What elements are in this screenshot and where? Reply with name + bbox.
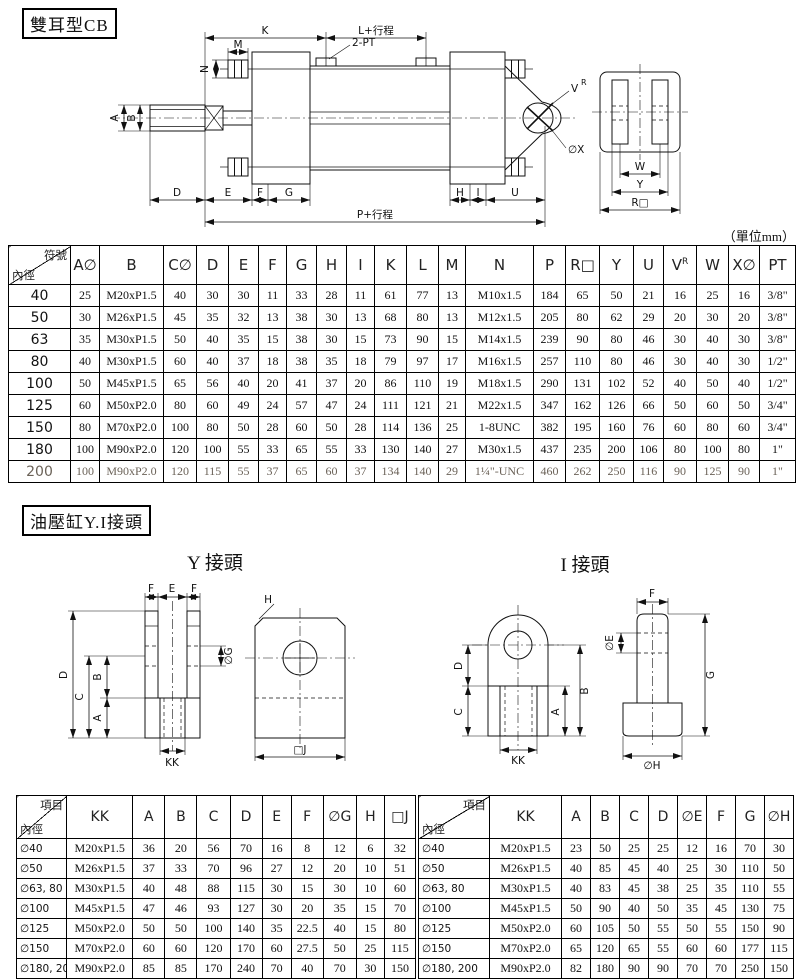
dim-label-w: W bbox=[635, 161, 646, 173]
table-cell: 257 bbox=[534, 351, 566, 373]
table-cell: 15 bbox=[291, 879, 323, 899]
table-cell: 11 bbox=[259, 285, 287, 307]
table-cell: M26xP1.5 bbox=[100, 307, 164, 329]
column-header: ∅H bbox=[765, 796, 794, 839]
table-cell: 15 bbox=[347, 329, 375, 351]
dim-label-a: A bbox=[550, 708, 562, 716]
table-cell: 115 bbox=[197, 461, 229, 483]
table-cell: 25 bbox=[71, 285, 100, 307]
row-label: ∅40 bbox=[419, 839, 490, 859]
table-cell: M50xP2.0 bbox=[490, 919, 562, 939]
dim-label-d: D bbox=[58, 671, 70, 679]
table-cell: 121 bbox=[407, 395, 439, 417]
column-header: K bbox=[375, 246, 407, 285]
table-row: ∅63, 80M30xP1.540834538253511055 bbox=[419, 879, 794, 899]
dim-label-f: F bbox=[649, 588, 655, 600]
row-label: 200 bbox=[9, 461, 71, 483]
table-cell: 45 bbox=[164, 307, 197, 329]
table-cell: 30 bbox=[317, 307, 347, 329]
table-cell: 20 bbox=[259, 373, 287, 395]
table-cell: 70 bbox=[707, 959, 736, 979]
table-cell: 79 bbox=[375, 351, 407, 373]
table-cell: 120 bbox=[164, 461, 197, 483]
table-cell: 60 bbox=[287, 417, 317, 439]
dim-label-b: B bbox=[579, 687, 591, 694]
table-cell: 60 bbox=[697, 395, 729, 417]
table-corner-header: 項目內徑 bbox=[17, 796, 67, 839]
table-cell: 90 bbox=[566, 329, 600, 351]
table-cell: 56 bbox=[197, 839, 230, 859]
table-cell: 40 bbox=[697, 351, 729, 373]
column-header: KK bbox=[490, 796, 562, 839]
table-cell: 80 bbox=[600, 329, 634, 351]
unit-note: （單位mm） bbox=[690, 226, 795, 245]
i-joint-drawing: D C B A KK F ∅E G ∅H bbox=[420, 588, 800, 793]
table-cell: 70 bbox=[262, 959, 291, 979]
table-cell: 30 bbox=[729, 351, 760, 373]
table-cell: 82 bbox=[562, 959, 591, 979]
column-header: F bbox=[291, 796, 323, 839]
row-label: ∅63, 80 bbox=[419, 879, 490, 899]
dim-label-h: H bbox=[264, 594, 272, 606]
table-cell: 49 bbox=[229, 395, 259, 417]
table-cell: 37 bbox=[259, 461, 287, 483]
table-row: ∅50M26xP1.5373370962712201051 bbox=[17, 859, 416, 879]
table-cell: 35 bbox=[71, 329, 100, 351]
table-cell: 33 bbox=[347, 439, 375, 461]
row-label: 50 bbox=[9, 307, 71, 329]
table-cell: 50 bbox=[649, 899, 678, 919]
table-cell: M20xP1.5 bbox=[490, 839, 562, 859]
table-cell: 200 bbox=[600, 439, 634, 461]
table-cell: M10x1.5 bbox=[466, 285, 534, 307]
table-cell: 12 bbox=[291, 859, 323, 879]
table-row: ∅180, 200M90xP2.08218090907070250150 bbox=[419, 959, 794, 979]
table-cell: 184 bbox=[534, 285, 566, 307]
table-cell: 6 bbox=[356, 839, 384, 859]
table-cell: 262 bbox=[566, 461, 600, 483]
table-cell: 115 bbox=[230, 879, 262, 899]
table-row: ∅125M50xP2.050501001403522.5401580 bbox=[17, 919, 416, 939]
table-cell: 195 bbox=[566, 417, 600, 439]
column-header: KK bbox=[67, 796, 133, 839]
table-cell: 12 bbox=[678, 839, 707, 859]
table-cell: M90xP2.0 bbox=[100, 461, 164, 483]
column-header: F bbox=[259, 246, 287, 285]
table-cell: 35 bbox=[707, 879, 736, 899]
table-cell: 16 bbox=[707, 839, 736, 859]
table-cell: 15 bbox=[259, 329, 287, 351]
table-cell: 60 bbox=[562, 919, 591, 939]
table-row: ∅50M26xP1.540854540253011050 bbox=[419, 859, 794, 879]
corner-top-label: 項目 bbox=[463, 797, 486, 813]
table-cell: M14x1.5 bbox=[466, 329, 534, 351]
row-label: ∅40 bbox=[17, 839, 67, 859]
table-cell: 40 bbox=[562, 879, 591, 899]
table-cell: 35 bbox=[678, 899, 707, 919]
table-cell: 90 bbox=[407, 329, 439, 351]
table-cell: 18 bbox=[347, 351, 375, 373]
dim-label-og: ∅G bbox=[223, 647, 235, 664]
table-cell: 127 bbox=[230, 899, 262, 919]
table-cell: 60 bbox=[165, 939, 197, 959]
table-cell: 250 bbox=[736, 959, 765, 979]
column-header: E bbox=[262, 796, 291, 839]
table-cell: 90 bbox=[591, 899, 620, 919]
table-cell: 1/2" bbox=[760, 351, 796, 373]
table-cell: 1¼"-UNC bbox=[466, 461, 534, 483]
table-cell: 16 bbox=[729, 285, 760, 307]
table-cell: 50 bbox=[164, 329, 197, 351]
corner-bottom-label: 內徑 bbox=[12, 267, 35, 283]
table-cell: 45 bbox=[620, 879, 649, 899]
dim-label-oe: ∅E bbox=[604, 635, 616, 651]
table-cell: 45 bbox=[620, 859, 649, 879]
table-cell: 65 bbox=[287, 461, 317, 483]
column-header: D bbox=[197, 246, 229, 285]
table-cell: 25 bbox=[439, 417, 466, 439]
column-header: Y bbox=[600, 246, 634, 285]
table-cell: M16x1.5 bbox=[466, 351, 534, 373]
column-header: C∅ bbox=[164, 246, 197, 285]
table-cell: 239 bbox=[534, 329, 566, 351]
table-cell: 70 bbox=[323, 959, 356, 979]
column-header: A∅ bbox=[71, 246, 100, 285]
column-header: M bbox=[439, 246, 466, 285]
table-cell: 55 bbox=[317, 439, 347, 461]
table-cell: 20 bbox=[323, 859, 356, 879]
table-cell: 114 bbox=[375, 417, 407, 439]
table-cell: 51 bbox=[384, 859, 415, 879]
table-cell: 37 bbox=[133, 859, 165, 879]
table-cell: 120 bbox=[591, 939, 620, 959]
dim-label-f: F bbox=[257, 187, 263, 199]
table-cell: 27 bbox=[262, 859, 291, 879]
table-cell: 55 bbox=[707, 919, 736, 939]
table-cell: 24 bbox=[259, 395, 287, 417]
dim-label-c: C bbox=[453, 708, 465, 715]
table-cell: 46 bbox=[634, 329, 664, 351]
table-cell: 37 bbox=[317, 373, 347, 395]
table-cell: 60 bbox=[729, 417, 760, 439]
table-cell: 40 bbox=[164, 285, 197, 307]
table-cell: 20 bbox=[729, 307, 760, 329]
table-cell: 70 bbox=[230, 839, 262, 859]
table-cell: 60 bbox=[164, 351, 197, 373]
table-cell: 100 bbox=[164, 417, 197, 439]
table-row: ∅40M20xP1.53620567016812632 bbox=[17, 839, 416, 859]
dim-label-m: M bbox=[233, 39, 242, 51]
dim-label-g: G bbox=[285, 187, 293, 199]
table-cell: M30xP1.5 bbox=[67, 879, 133, 899]
table-cell: 15 bbox=[356, 899, 384, 919]
table-cell: 30 bbox=[356, 959, 384, 979]
table-cell: 50 bbox=[664, 395, 697, 417]
table-cell: M45xP1.5 bbox=[490, 899, 562, 919]
table-cell: 45 bbox=[707, 899, 736, 919]
dim-label-b: B bbox=[92, 673, 104, 680]
table-row: 5030M26xP1.545353213383013688013M12x1.52… bbox=[9, 307, 796, 329]
table-cell: 30 bbox=[317, 329, 347, 351]
table-cell: 100 bbox=[71, 439, 100, 461]
table-cell: 130 bbox=[736, 899, 765, 919]
table-cell: 134 bbox=[375, 461, 407, 483]
dim-label-kk: KK bbox=[165, 757, 180, 769]
table-cell: 21 bbox=[439, 395, 466, 417]
row-label: ∅150 bbox=[17, 939, 67, 959]
table-cell: 60 bbox=[197, 395, 229, 417]
row-label: ∅150 bbox=[419, 939, 490, 959]
table-cell: 235 bbox=[566, 439, 600, 461]
column-header: A bbox=[133, 796, 165, 839]
dim-label-f-right: F bbox=[191, 583, 197, 595]
table-cell: 48 bbox=[165, 879, 197, 899]
column-header: E bbox=[229, 246, 259, 285]
table-cell: 12 bbox=[323, 839, 356, 859]
table-cell: 136 bbox=[407, 417, 439, 439]
row-label: ∅50 bbox=[17, 859, 67, 879]
table-cell: 13 bbox=[439, 285, 466, 307]
table-cell: M20xP1.5 bbox=[67, 839, 133, 859]
table-cell: 33 bbox=[287, 285, 317, 307]
table-cell: M90xP2.0 bbox=[100, 439, 164, 461]
table-cell: 93 bbox=[197, 899, 230, 919]
column-header: P bbox=[534, 246, 566, 285]
column-header: ∅G bbox=[323, 796, 356, 839]
table-cell: 35 bbox=[229, 329, 259, 351]
table-row: 4025M20xP1.540303011332811617713M10x1.51… bbox=[9, 285, 796, 307]
ports-label: 2-PT bbox=[352, 37, 376, 49]
dim-label-c: C bbox=[74, 693, 86, 700]
table-cell: 47 bbox=[133, 899, 165, 919]
table-cell: 18 bbox=[259, 351, 287, 373]
table-cell: 66 bbox=[634, 395, 664, 417]
table-corner-header: 符號內徑 bbox=[9, 246, 71, 285]
table-cell: 56 bbox=[197, 373, 229, 395]
row-label: ∅125 bbox=[419, 919, 490, 939]
catalog-page: { "page": { "unit_note": "（單位mm）" }, "se… bbox=[0, 0, 800, 980]
table-cell: 30 bbox=[229, 285, 259, 307]
table-cell: 80 bbox=[664, 439, 697, 461]
table-cell: 116 bbox=[634, 461, 664, 483]
table-cell: 80 bbox=[407, 307, 439, 329]
table-cell: 25 bbox=[620, 839, 649, 859]
table-cell: 36 bbox=[133, 839, 165, 859]
table-cell: 40 bbox=[229, 373, 259, 395]
column-header: H bbox=[356, 796, 384, 839]
table-cell: 110 bbox=[736, 879, 765, 899]
table-cell: 50 bbox=[600, 285, 634, 307]
table-cell: 13 bbox=[259, 307, 287, 329]
dim-label-b: B bbox=[126, 114, 138, 121]
dim-label-g: G bbox=[705, 671, 717, 679]
table-cell: 52 bbox=[634, 373, 664, 395]
dim-label-u: U bbox=[511, 187, 519, 199]
table-cell: 60 bbox=[384, 879, 415, 899]
table-cell: 140 bbox=[407, 461, 439, 483]
table-row: 6335M30xP1.550403515383015739015M14x1.52… bbox=[9, 329, 796, 351]
table-cell: 10 bbox=[356, 879, 384, 899]
table-cell: 28 bbox=[317, 285, 347, 307]
table-corner-header: 項目內徑 bbox=[419, 796, 490, 839]
table-cell: 65 bbox=[566, 285, 600, 307]
table-cell: 88 bbox=[197, 879, 230, 899]
column-header: B bbox=[100, 246, 164, 285]
table-cell: 130 bbox=[375, 439, 407, 461]
table-cell: 30 bbox=[707, 859, 736, 879]
table-cell: 22.5 bbox=[291, 919, 323, 939]
yi-section-title: 油壓缸Y.I接頭 bbox=[22, 505, 151, 536]
table-cell: 150 bbox=[384, 959, 415, 979]
table-cell: 1" bbox=[760, 439, 796, 461]
y-joint-table: 項目內徑KKABCDEF∅GH□J∅40M20xP1.5362056701681… bbox=[16, 795, 416, 979]
table-cell: 40 bbox=[323, 919, 356, 939]
table-row: 15080M70xP2.0100805028605028114136251-8U… bbox=[9, 417, 796, 439]
table-cell: 162 bbox=[566, 395, 600, 417]
table-row: 10050M45xP1.5655640204137208611019M18x1.… bbox=[9, 373, 796, 395]
corner-top-label: 項目 bbox=[40, 797, 63, 813]
table-cell: 25 bbox=[356, 939, 384, 959]
table-cell: M26xP1.5 bbox=[67, 859, 133, 879]
table-cell: 30 bbox=[71, 307, 100, 329]
table-cell: 30 bbox=[664, 351, 697, 373]
table-cell: 150 bbox=[736, 919, 765, 939]
table-cell: 61 bbox=[375, 285, 407, 307]
table-cell: 28 bbox=[347, 417, 375, 439]
table-row: ∅150M70xP2.060601201706027.55025115 bbox=[17, 939, 416, 959]
table-cell: 35 bbox=[262, 919, 291, 939]
table-cell: 120 bbox=[164, 439, 197, 461]
table-cell: 86 bbox=[375, 373, 407, 395]
table-cell: M70xP2.0 bbox=[490, 939, 562, 959]
dim-label-e: E bbox=[225, 187, 232, 199]
table-cell: 60 bbox=[678, 939, 707, 959]
table-cell: 80 bbox=[197, 417, 229, 439]
table-cell: 30 bbox=[765, 839, 794, 859]
dim-label-d: D bbox=[453, 662, 465, 670]
table-row: 8040M30xP1.560403718383518799717M16x1.52… bbox=[9, 351, 796, 373]
table-cell: M30xP1.5 bbox=[100, 329, 164, 351]
table-cell: 170 bbox=[230, 939, 262, 959]
column-header: D bbox=[649, 796, 678, 839]
table-cell: 90 bbox=[729, 461, 760, 483]
table-cell: 29 bbox=[439, 461, 466, 483]
y-joint-drawing: F E F ∅G D C B A KK H □J bbox=[40, 583, 380, 793]
table-row: ∅40M20xP1.52350252512167030 bbox=[419, 839, 794, 859]
table-cell: 27.5 bbox=[291, 939, 323, 959]
table-cell: 55 bbox=[765, 879, 794, 899]
table-cell: 110 bbox=[407, 373, 439, 395]
table-cell: 76 bbox=[634, 417, 664, 439]
table-cell: 240 bbox=[230, 959, 262, 979]
table-cell: 40 bbox=[562, 859, 591, 879]
table-cell: 1" bbox=[760, 461, 796, 483]
table-cell: 50 bbox=[678, 919, 707, 939]
table-cell: 33 bbox=[165, 859, 197, 879]
table-cell: 90 bbox=[620, 959, 649, 979]
table-cell: 50 bbox=[620, 919, 649, 939]
column-header: □J bbox=[384, 796, 415, 839]
table-cell: 11 bbox=[347, 285, 375, 307]
column-header: B bbox=[591, 796, 620, 839]
table-cell: 40 bbox=[664, 373, 697, 395]
table-cell: 140 bbox=[230, 919, 262, 939]
table-cell: 85 bbox=[133, 959, 165, 979]
table-cell: 30 bbox=[262, 879, 291, 899]
dim-label-oh: ∅H bbox=[643, 760, 660, 772]
table-cell: 111 bbox=[375, 395, 407, 417]
dim-label-a: A bbox=[92, 714, 104, 722]
table-cell: 125 bbox=[697, 461, 729, 483]
table-cell: 60 bbox=[707, 939, 736, 959]
table-cell: 30 bbox=[664, 329, 697, 351]
table-cell: 55 bbox=[649, 939, 678, 959]
table-cell: M12x1.5 bbox=[466, 307, 534, 329]
table-cell: 115 bbox=[765, 939, 794, 959]
dim-label-a: A bbox=[109, 114, 121, 122]
table-cell: 40 bbox=[291, 959, 323, 979]
table-cell: 170 bbox=[197, 959, 230, 979]
table-cell: 80 bbox=[164, 395, 197, 417]
table-cell: 3/4" bbox=[760, 395, 796, 417]
table-cell: 50 bbox=[765, 859, 794, 879]
table-cell: 23 bbox=[562, 839, 591, 859]
table-cell: 73 bbox=[375, 329, 407, 351]
table-cell: 65 bbox=[164, 373, 197, 395]
table-cell: 40 bbox=[620, 899, 649, 919]
table-cell: 24 bbox=[347, 395, 375, 417]
table-cell: 50 bbox=[317, 417, 347, 439]
table-cell: 20 bbox=[165, 839, 197, 859]
dim-label-i: I bbox=[476, 187, 479, 199]
cb-cylinder-drawing: K L+行程 M N 2-PT V R ∅X A B D E F G H I U… bbox=[0, 22, 800, 244]
table-cell: 50 bbox=[729, 395, 760, 417]
table-cell: 40 bbox=[133, 879, 165, 899]
table-cell: 100 bbox=[697, 439, 729, 461]
table-cell: 30 bbox=[729, 329, 760, 351]
row-label: 80 bbox=[9, 351, 71, 373]
dim-label-kk: KK bbox=[511, 755, 526, 767]
table-cell: 35 bbox=[317, 351, 347, 373]
dim-label-y: Y bbox=[636, 179, 644, 191]
table-cell: 80 bbox=[384, 919, 415, 939]
table-cell: 437 bbox=[534, 439, 566, 461]
table-cell: 105 bbox=[591, 919, 620, 939]
table-cell: 41 bbox=[287, 373, 317, 395]
table-row: ∅100M45xP1.550904050354513075 bbox=[419, 899, 794, 919]
table-cell: 131 bbox=[566, 373, 600, 395]
table-cell: 70 bbox=[197, 859, 230, 879]
column-header: ∅E bbox=[678, 796, 707, 839]
cb-dimension-table: 符號內徑A∅BC∅DEFGHIKLMNPR□YUVRWX∅PT4025M20xP… bbox=[8, 245, 796, 483]
table-cell: M30x1.5 bbox=[466, 439, 534, 461]
dim-label-f-left: F bbox=[148, 583, 154, 595]
table-cell: 33 bbox=[259, 439, 287, 461]
row-label: ∅63, 80 bbox=[17, 879, 67, 899]
table-row: ∅63, 80M30xP1.54048881153015301060 bbox=[17, 879, 416, 899]
table-cell: 50 bbox=[562, 899, 591, 919]
table-cell: 3/4" bbox=[760, 417, 796, 439]
table-cell: 15 bbox=[356, 919, 384, 939]
table-cell: 65 bbox=[620, 939, 649, 959]
table-cell: 8 bbox=[291, 839, 323, 859]
table-cell: 100 bbox=[197, 919, 230, 939]
table-cell: 20 bbox=[347, 373, 375, 395]
column-header: C bbox=[197, 796, 230, 839]
dim-label-e: E bbox=[169, 583, 176, 595]
table-cell: 25 bbox=[678, 859, 707, 879]
table-cell: M45xP1.5 bbox=[67, 899, 133, 919]
